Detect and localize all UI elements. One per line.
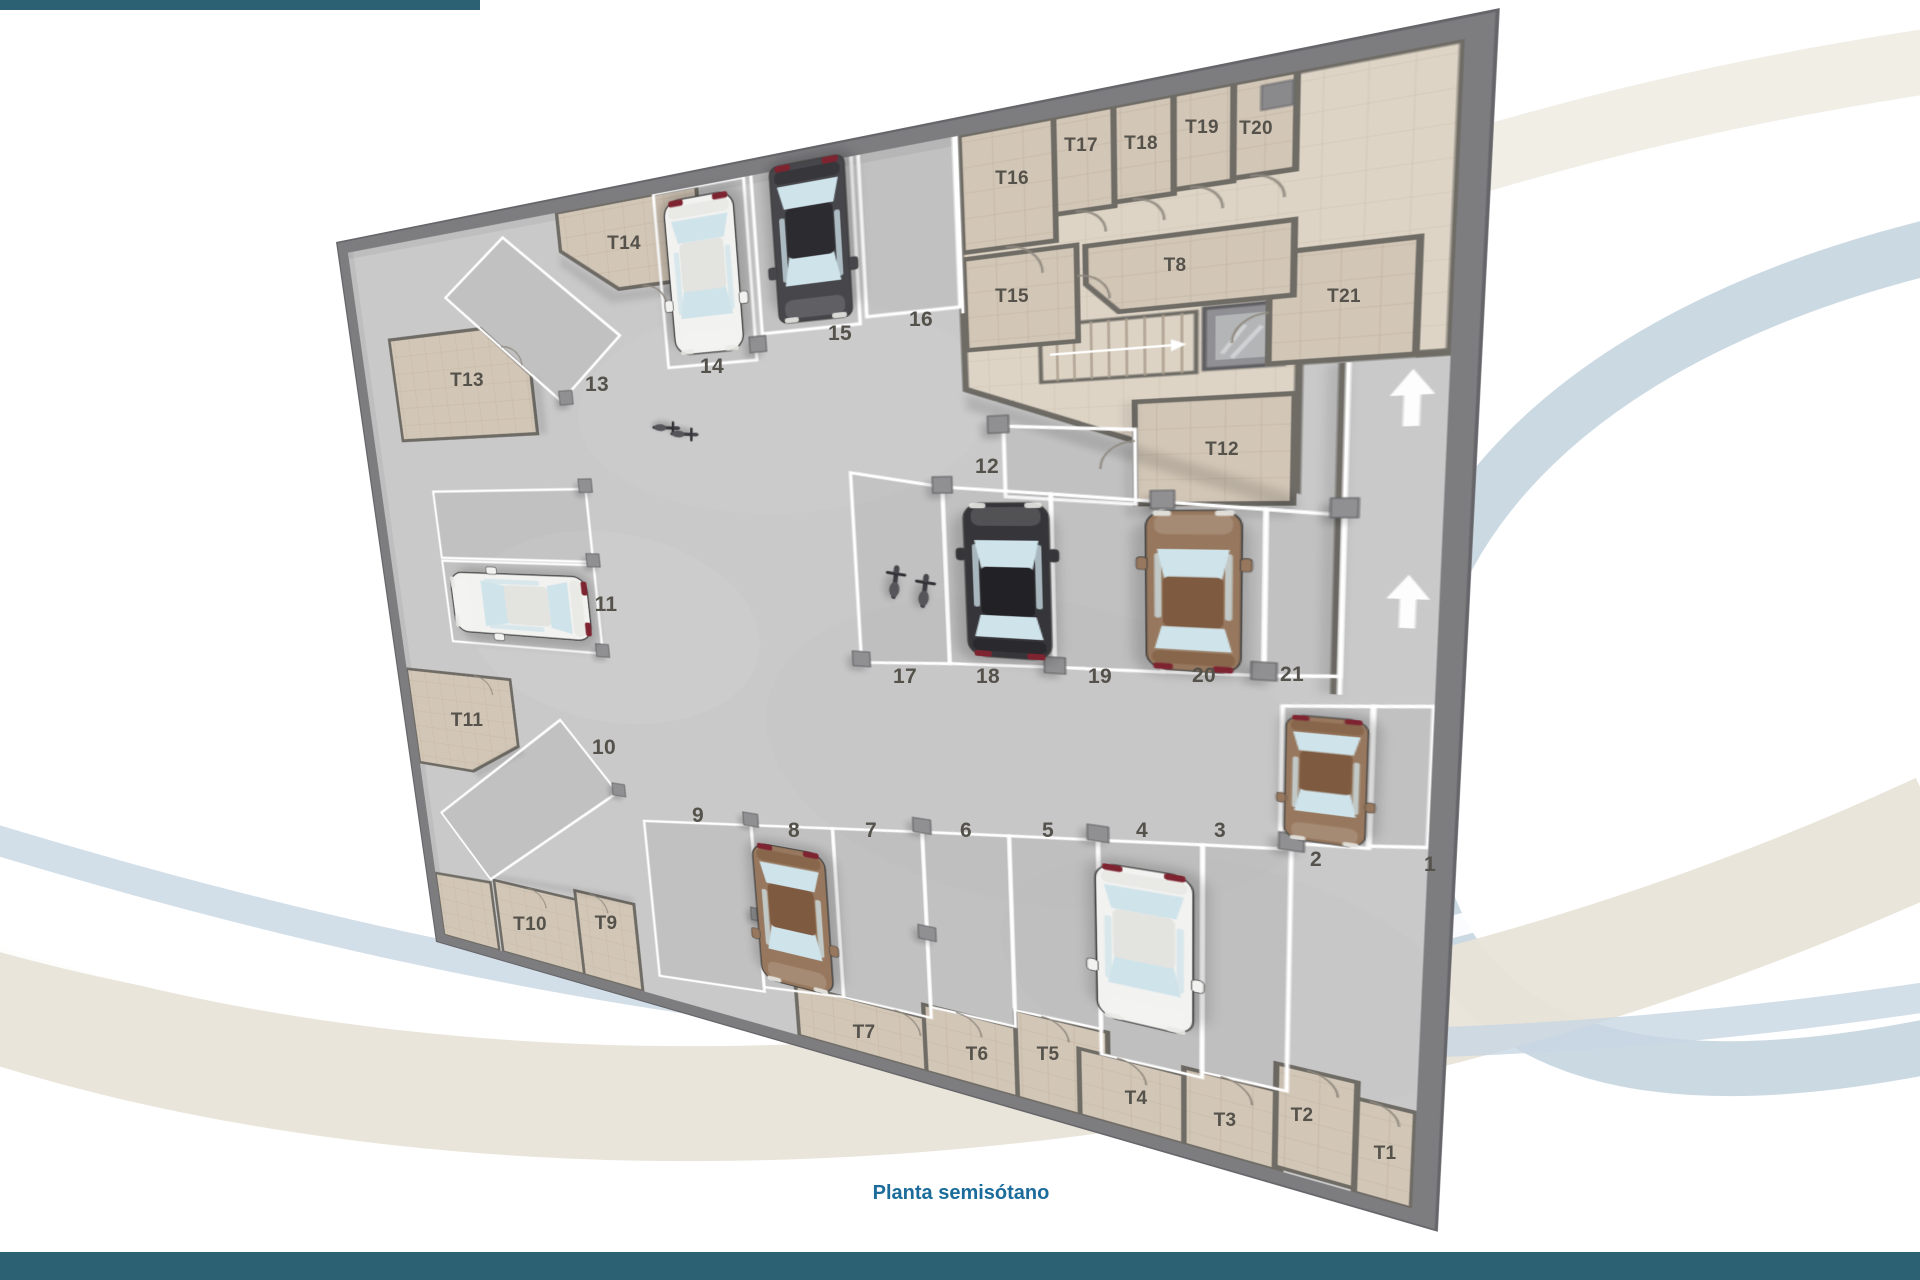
- room-T17: [1053, 106, 1114, 214]
- room-T15: [964, 245, 1079, 350]
- vehicle-space-20: [1131, 510, 1253, 681]
- vehicle-space-18: [950, 503, 1061, 668]
- space-3: [1202, 837, 1291, 1093]
- space-upper-left: [433, 489, 593, 562]
- space-5: [1009, 827, 1101, 1031]
- space-17: [850, 471, 950, 670]
- room-T1: [1354, 1098, 1417, 1208]
- vent-shaft: [1261, 80, 1293, 110]
- accent-bar-bottom: [0, 1252, 1920, 1280]
- room-T19: [1174, 83, 1234, 190]
- swoosh-curve-beige-top: [1480, 58, 1920, 160]
- space-9: [643, 806, 766, 1004]
- vehicle-space-15: [761, 144, 865, 324]
- space-16: [858, 127, 961, 316]
- vehicle-space-14: [655, 181, 755, 356]
- space-21: [1264, 509, 1345, 681]
- space-7: [832, 817, 932, 1019]
- vehicle-space-2: [1276, 708, 1383, 850]
- space-6: [922, 822, 1016, 1028]
- accent-bar-top: [0, 0, 480, 10]
- room-T18: [1113, 95, 1173, 203]
- room-T16: [959, 118, 1056, 253]
- page-title: Planta semisótano: [841, 1182, 1081, 1205]
